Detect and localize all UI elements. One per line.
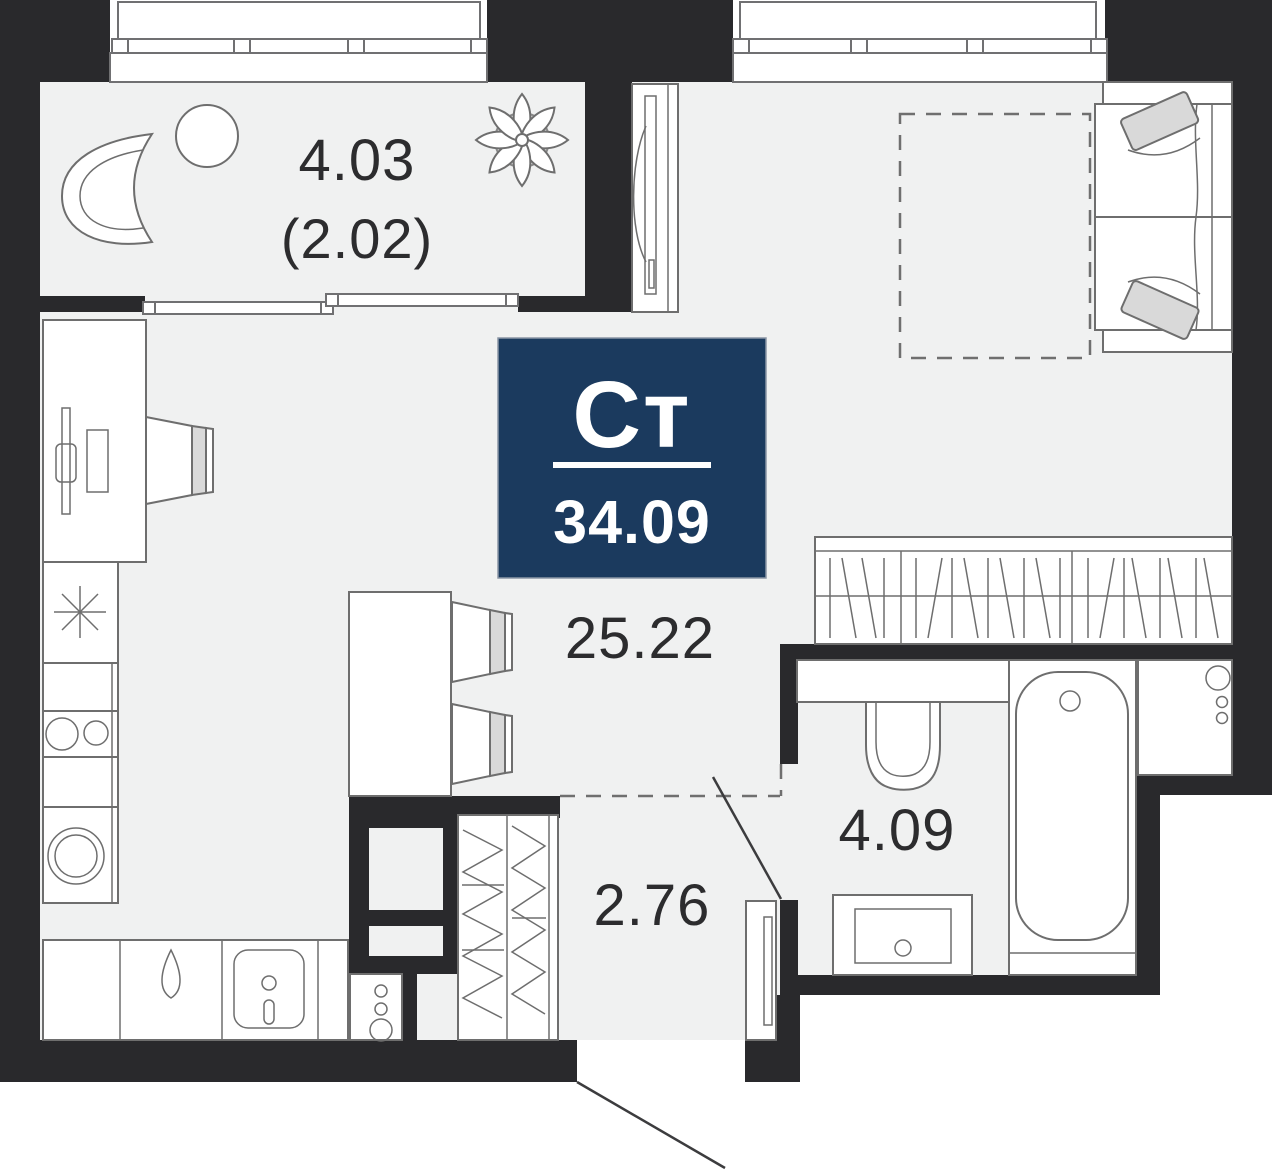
badge-divider	[553, 462, 711, 468]
utility-niche	[1138, 660, 1232, 775]
hob	[43, 711, 118, 757]
plant-icon	[476, 94, 568, 186]
vanity-sink	[833, 895, 972, 975]
kitchen-cabinet	[43, 757, 118, 807]
apartment-badge: Ст 34.09	[498, 338, 766, 578]
washing-machine	[43, 807, 118, 903]
sofa	[1095, 82, 1232, 352]
fridge	[43, 562, 118, 663]
hallway-area-label: 2.76	[594, 873, 711, 938]
tv-unit	[632, 84, 678, 312]
floorplan-drawing: 4.03 (2.02) 25.22 2.76 4.09 Ст 34.09	[0, 0, 1272, 1170]
bathroom-shelf	[797, 660, 1009, 702]
balcony-table	[176, 105, 238, 167]
kitchen-counter	[43, 940, 348, 1040]
dining-chair	[452, 704, 512, 784]
hall-closet	[458, 815, 558, 1040]
living-room-area-label: 25.22	[565, 606, 715, 671]
dining-chair	[452, 602, 512, 682]
window-left	[110, 2, 487, 82]
balcony-area-secondary-label: (2.02)	[281, 207, 433, 270]
kitchen-cabinet	[43, 663, 118, 711]
bathtub	[1009, 660, 1136, 975]
floorplan-canvas: 4.03 (2.02) 25.22 2.76 4.09 Ст 34.09	[0, 0, 1272, 1170]
shaft-niche-small	[369, 926, 443, 956]
desk	[43, 320, 146, 562]
toilet	[866, 702, 940, 790]
shaft-niche	[369, 828, 443, 910]
wardrobe	[815, 537, 1232, 644]
badge-area-value: 34.09	[553, 488, 711, 556]
window-right	[733, 2, 1107, 82]
balcony-area-label: 4.03	[299, 128, 416, 193]
dining-table	[349, 592, 451, 796]
entry-door-swing	[577, 1082, 725, 1168]
badge-type-label: Ст	[572, 362, 691, 468]
bathroom-area-label: 4.09	[839, 798, 956, 863]
desk-chair	[146, 417, 213, 504]
oven-unit	[350, 974, 402, 1041]
